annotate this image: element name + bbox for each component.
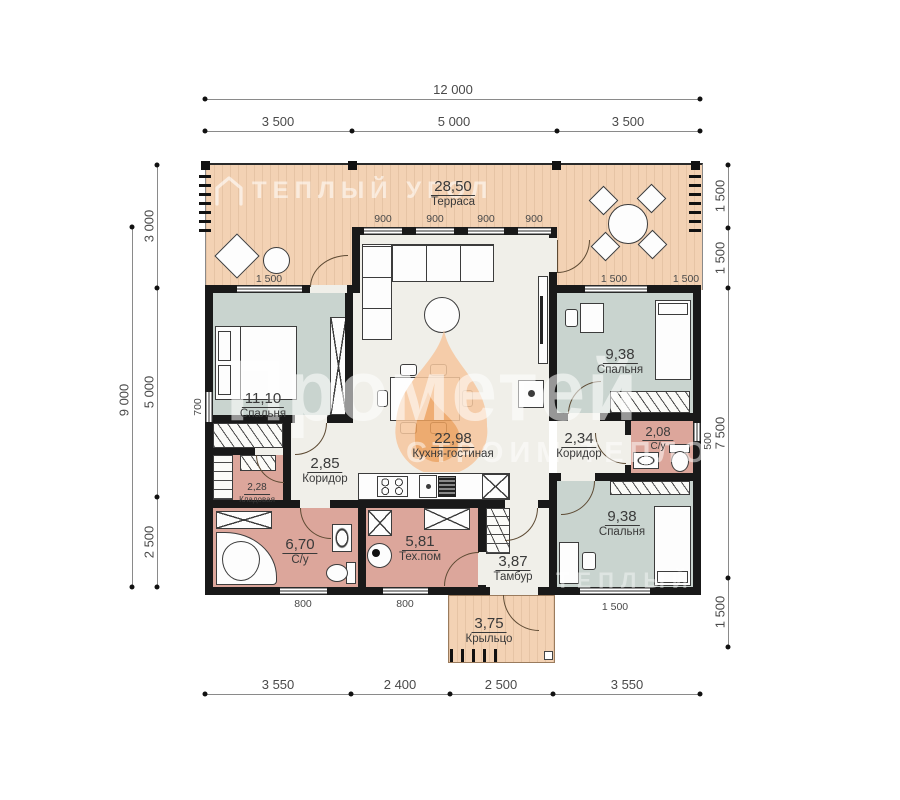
dish-rack bbox=[438, 476, 456, 497]
win-dim-800a: 800 bbox=[294, 598, 312, 610]
window bbox=[518, 227, 551, 235]
label-storage: 2,28 Кладовая bbox=[239, 477, 275, 505]
dim-dot bbox=[726, 286, 731, 291]
dim-dot bbox=[726, 163, 731, 168]
label-bedroom3-name: Спальня bbox=[599, 526, 645, 539]
dim-r2: 1 500 bbox=[713, 242, 728, 275]
label-tech: 5,81 Тех.пом bbox=[399, 533, 441, 565]
label-kitchen-area: 22,98 bbox=[431, 430, 475, 448]
win-dim-900: 900 bbox=[477, 213, 495, 225]
win-dim-800b: 800 bbox=[396, 598, 414, 610]
label-bath2-name: С/у bbox=[642, 441, 673, 453]
dim-dot bbox=[155, 495, 160, 500]
label-corridor1-area: 2,85 bbox=[307, 455, 342, 473]
washing-machine bbox=[368, 510, 392, 536]
win-dim-500: 500 bbox=[702, 432, 714, 450]
win-dim-900: 900 bbox=[374, 213, 392, 225]
dim-dot bbox=[726, 576, 731, 581]
dim-dot bbox=[698, 129, 703, 134]
terrace-post bbox=[348, 161, 357, 170]
win-dim-bed1: 1 500 bbox=[256, 273, 282, 285]
watermark-brand-main: Прометей bbox=[226, 342, 639, 441]
bed2-pillow bbox=[658, 303, 688, 315]
tv bbox=[540, 296, 543, 344]
dim-dot bbox=[698, 692, 703, 697]
win-dim-900: 900 bbox=[426, 213, 444, 225]
boiler-dot bbox=[372, 549, 380, 557]
window bbox=[364, 227, 402, 235]
label-kitchen-name: Кухня-гостиная bbox=[412, 448, 493, 461]
label-terrace-area: 28,50 bbox=[431, 178, 475, 196]
label-kitchen-living: 22,98 Кухня-гостиная bbox=[412, 430, 493, 462]
window bbox=[237, 285, 302, 293]
dim-w-left: 3 500 bbox=[262, 114, 295, 129]
label-tech-name: Тех.пом bbox=[399, 551, 441, 564]
wall bbox=[205, 285, 213, 595]
label-bedroom3: 9,38 Спальня bbox=[599, 508, 645, 540]
brand-house-icon bbox=[212, 174, 246, 208]
label-tambour-area: 3,87 bbox=[495, 553, 530, 571]
label-bath1-area: 6,70 bbox=[282, 536, 317, 554]
storage-shelving bbox=[213, 455, 233, 500]
window bbox=[280, 587, 327, 595]
window bbox=[468, 227, 504, 235]
sofa-left bbox=[362, 244, 392, 340]
chair-bedroom2 bbox=[565, 309, 578, 327]
dim-total-width: 12 000 bbox=[433, 82, 473, 97]
label-tech-area: 5,81 bbox=[402, 533, 437, 551]
wall bbox=[352, 227, 360, 293]
dim-dot bbox=[698, 97, 703, 102]
dim-dot bbox=[349, 692, 354, 697]
terrace-rail-left bbox=[199, 170, 211, 232]
door-opening bbox=[255, 448, 283, 455]
dim-dot bbox=[350, 129, 355, 134]
window bbox=[205, 392, 213, 422]
dim-dot bbox=[155, 163, 160, 168]
dim-line bbox=[157, 165, 158, 587]
label-tambour-name: Тамбур bbox=[493, 571, 532, 584]
dim-w-right: 3 500 bbox=[612, 114, 645, 129]
label-tambour: 3,87 Тамбур bbox=[493, 553, 532, 585]
watermark-brand-bottom: теплый угол bbox=[556, 568, 706, 594]
fridge bbox=[482, 474, 509, 499]
bath1-cabinet bbox=[216, 511, 272, 529]
dim-line bbox=[205, 131, 701, 132]
win-dim-terr-r: 1 500 bbox=[673, 273, 699, 285]
dim-dot bbox=[155, 585, 160, 590]
dim-dot bbox=[551, 692, 556, 697]
label-bedroom2: 9,38 Спальня bbox=[597, 346, 643, 378]
tech-shelf bbox=[424, 508, 470, 530]
label-bedroom2-name: Спальня bbox=[597, 364, 643, 377]
dim-b4: 3 550 bbox=[611, 677, 644, 692]
dim-dot bbox=[448, 692, 453, 697]
label-bath2-area: 2,08 bbox=[642, 425, 673, 441]
label-bedroom3-area: 9,38 bbox=[604, 508, 639, 526]
door-opening bbox=[549, 238, 557, 272]
coffee-table bbox=[424, 297, 460, 333]
boiler bbox=[367, 543, 392, 568]
desk-bedroom2 bbox=[580, 303, 604, 333]
door-opening bbox=[561, 473, 595, 481]
door-opening bbox=[300, 500, 330, 508]
label-corridor2: 2,34 Коридор bbox=[556, 430, 601, 462]
window bbox=[585, 285, 647, 293]
dim-dot bbox=[726, 645, 731, 650]
porch-steps bbox=[450, 649, 500, 662]
label-bedroom1-area: 11,10 bbox=[242, 390, 284, 408]
dim-r1: 1 500 bbox=[713, 180, 728, 213]
dim-dot bbox=[130, 225, 135, 230]
door-opening bbox=[478, 552, 486, 585]
dim-line bbox=[205, 99, 701, 100]
terrace-dining-table bbox=[608, 204, 648, 244]
dim-b1: 3 550 bbox=[262, 677, 295, 692]
dim-dot bbox=[155, 286, 160, 291]
wall bbox=[358, 508, 366, 587]
label-porch-name: Крыльцо bbox=[466, 633, 513, 646]
terrace-post bbox=[552, 161, 561, 170]
terrace-side-table bbox=[263, 247, 290, 274]
label-porch: 3,75 Крыльцо bbox=[466, 615, 513, 647]
wardrobe-bedroom3 bbox=[610, 481, 690, 495]
floor-plan-canvas: ТЕПЛЫЙ УГОЛ Прометей СТРОИМ ТЕПЛО теплый… bbox=[0, 0, 900, 800]
dim-line bbox=[132, 227, 133, 587]
dim-h-mid: 5 000 bbox=[142, 376, 157, 409]
dim-dot bbox=[203, 97, 208, 102]
bath1-toilet-bowl bbox=[326, 564, 348, 582]
dim-h-top: 3 000 bbox=[142, 210, 157, 243]
label-storage-name: Кладовая bbox=[239, 495, 275, 504]
terrace-rail-right bbox=[689, 170, 701, 232]
dim-r4: 1 500 bbox=[713, 596, 728, 629]
label-corridor1-name: Коридор bbox=[302, 473, 347, 486]
dim-dot bbox=[130, 585, 135, 590]
door-opening bbox=[490, 587, 538, 595]
label-bedroom2-area: 9,38 bbox=[602, 346, 637, 364]
label-corridor1: 2,85 Коридор bbox=[302, 455, 347, 487]
dim-w-mid: 5 000 bbox=[438, 114, 471, 129]
dim-b2: 2 400 bbox=[384, 677, 417, 692]
dim-r3: 7 500 bbox=[713, 417, 728, 450]
label-bath1: 6,70 С/у bbox=[282, 536, 317, 568]
win-dim-700: 700 bbox=[192, 398, 204, 416]
label-terrace-name: Терраса bbox=[431, 196, 475, 209]
dim-dot bbox=[203, 692, 208, 697]
window bbox=[416, 227, 454, 235]
win-dim-bed3: 1 500 bbox=[602, 601, 628, 613]
dim-dot bbox=[726, 226, 731, 231]
sofa-top bbox=[392, 244, 494, 282]
watermark-bottom-clip: теплый угол bbox=[556, 566, 706, 594]
terrace-post bbox=[201, 161, 210, 170]
dim-dot bbox=[203, 129, 208, 134]
dim-line bbox=[205, 694, 701, 695]
label-porch-area: 3,75 bbox=[471, 615, 506, 633]
label-bedroom1-name: Спальня bbox=[240, 408, 286, 421]
dim-h-bot: 2 500 bbox=[142, 526, 157, 559]
window bbox=[383, 587, 428, 595]
bath1-sink bbox=[332, 524, 352, 552]
stove bbox=[377, 476, 408, 497]
win-dim-bed2: 1 500 bbox=[601, 273, 627, 285]
label-storage-area: 2,28 bbox=[244, 482, 269, 495]
dim-dot bbox=[555, 129, 560, 134]
label-corridor2-area: 2,34 bbox=[561, 430, 596, 448]
dim-b3: 2 500 bbox=[485, 677, 518, 692]
porch-column bbox=[544, 651, 553, 660]
label-corridor2-name: Коридор bbox=[556, 448, 601, 461]
label-bedroom1: 11,10 Спальня bbox=[240, 390, 286, 422]
door-opening bbox=[505, 500, 538, 508]
sink-dot bbox=[426, 484, 431, 489]
win-dim-900: 900 bbox=[525, 213, 543, 225]
label-bath2: 2,08 С/у bbox=[642, 423, 673, 453]
dim-total-height: 9 000 bbox=[117, 384, 132, 417]
label-terrace: 28,50 Терраса bbox=[431, 178, 475, 210]
label-bath1-name: С/у bbox=[282, 554, 317, 567]
terrace-post bbox=[691, 161, 700, 170]
